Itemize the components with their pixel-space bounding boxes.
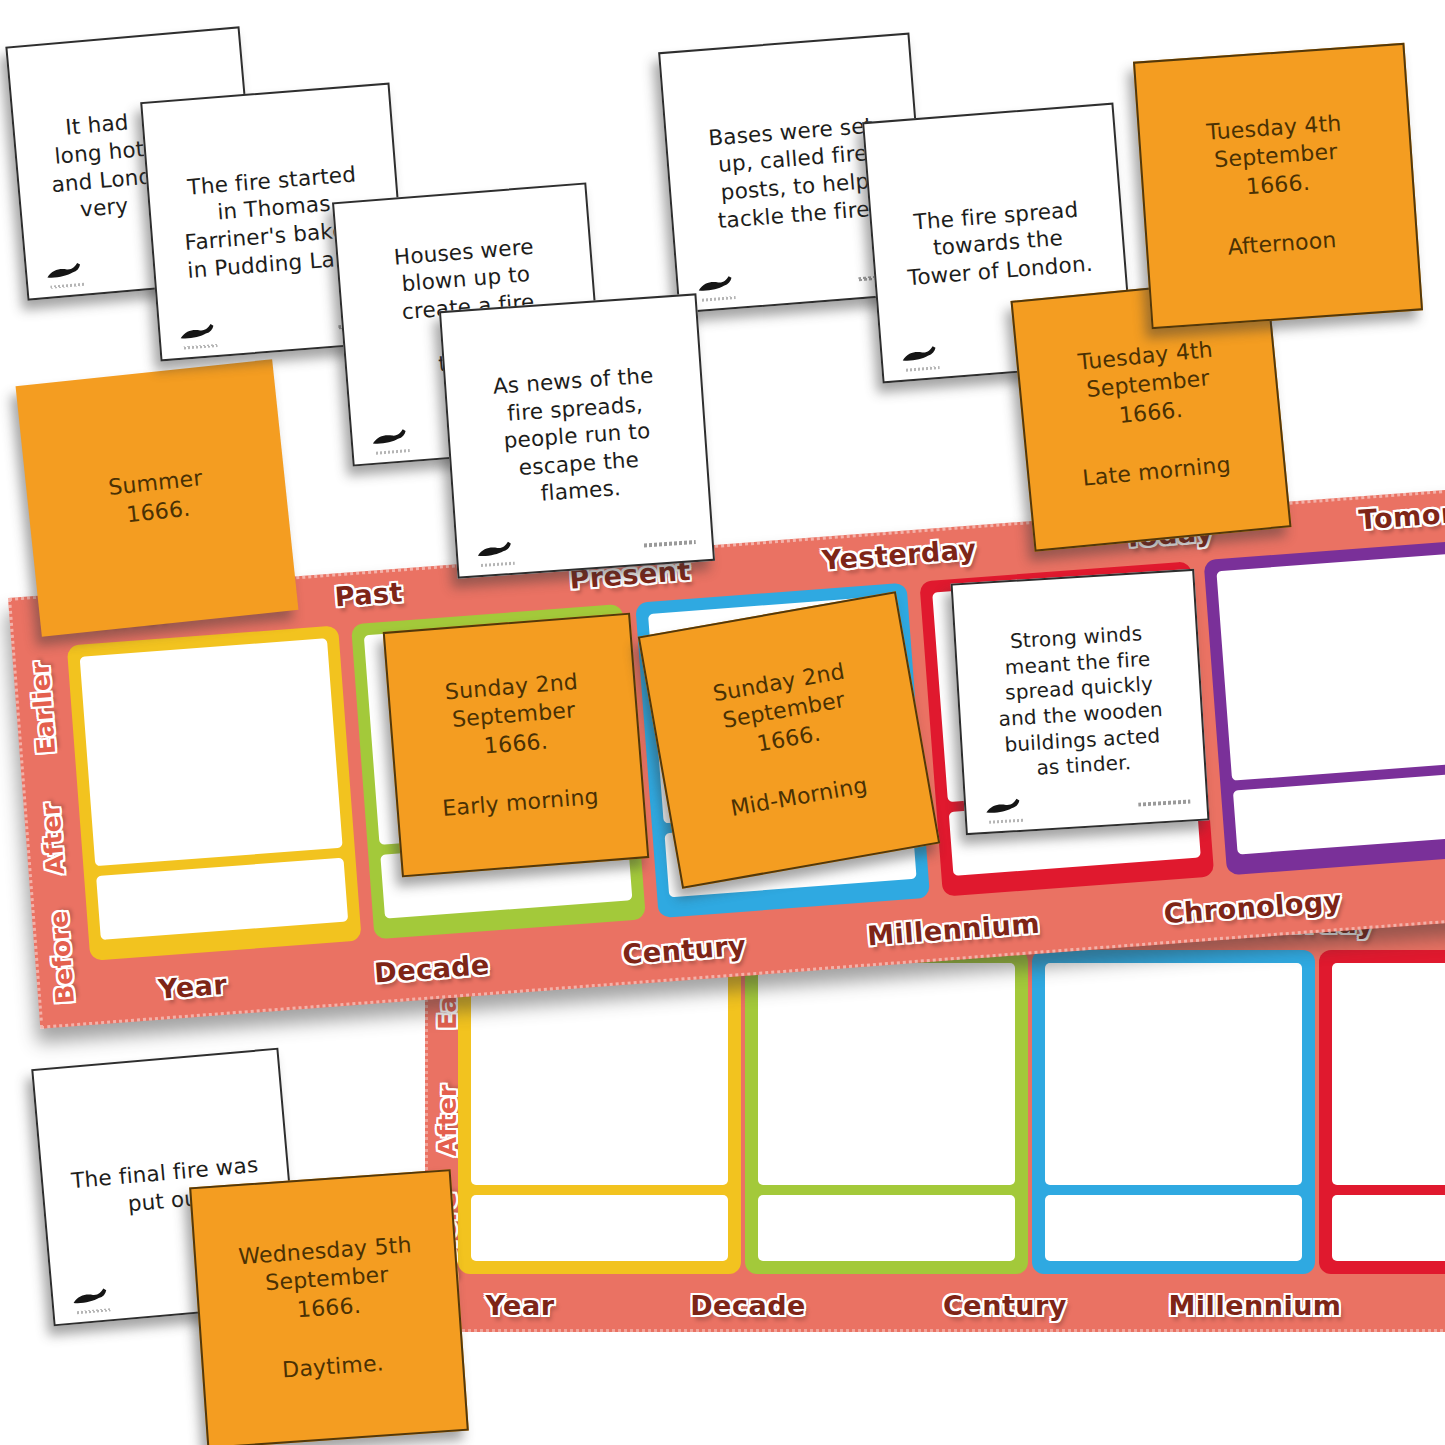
copyright-smudge xyxy=(1138,799,1190,806)
wildgoose-logo-icon xyxy=(370,426,411,449)
date-card-tuesday-afternoon[interactable]: Tuesday 4th September 1666. Afternoon xyxy=(1133,43,1423,329)
board1-side-label-earlier: Earlier xyxy=(24,647,62,769)
event-card-news-spreads[interactable]: As news of the fire spreads, people run … xyxy=(439,293,715,578)
timeline-frame-red xyxy=(1319,950,1445,1274)
time-text: Afternoon xyxy=(1227,226,1338,262)
date-text: Wednesday 5th September 1666. xyxy=(237,1231,416,1329)
time-text: Late morning xyxy=(1081,450,1232,493)
board1-bottom-label-millennium: Millennium xyxy=(866,908,1041,952)
board1-bottom-label-chronology: Chronology xyxy=(1163,885,1343,929)
logo-caption-smudge xyxy=(989,819,1023,824)
date-card-summer-1666[interactable]: Summer 1666. xyxy=(16,359,299,637)
wildgoose-logo-icon xyxy=(475,539,516,562)
board1-top-label-yesterday: Yesterday xyxy=(821,533,978,576)
board2-bottom-label-century: Century xyxy=(943,1290,1067,1321)
date-card-wednesday-daytime[interactable]: Wednesday 5th September 1666. Daytime. xyxy=(189,1169,469,1445)
logo-caption-smudge xyxy=(183,344,217,350)
card-slot-small[interactable] xyxy=(96,858,348,940)
timeline-frame-yellow xyxy=(458,950,741,1274)
date-text: Summer 1666. xyxy=(107,465,207,532)
card-slot-small[interactable] xyxy=(758,1195,1015,1261)
wildgoose-logo-icon xyxy=(984,796,1025,818)
board1-bottom-label-century: Century xyxy=(621,930,747,970)
board1-side-label-after: After xyxy=(34,778,72,900)
event-card-text: Bases were set up, called fire posts, to… xyxy=(707,112,880,235)
wildgoose-logo-icon xyxy=(696,273,737,296)
card-slot-large[interactable] xyxy=(758,963,1015,1185)
card-slot-large[interactable] xyxy=(1045,963,1302,1185)
date-text: Tuesday 4th September 1666. xyxy=(1205,109,1346,204)
card-slot-small[interactable] xyxy=(471,1195,728,1261)
timeline-frame-blue xyxy=(1032,950,1315,1274)
timeline-frame-purple xyxy=(1204,540,1445,876)
logo-caption-smudge xyxy=(76,1308,110,1314)
board2-bottom-label-millennium: Millennium xyxy=(1169,1290,1342,1321)
event-card-text: As news of the fire spreads, people run … xyxy=(492,362,662,510)
board1-bottom-label-year: Year xyxy=(157,969,228,1005)
board1-top-label-tomorrow: Tomorrow xyxy=(1358,493,1445,535)
copyright-smudge xyxy=(644,540,696,548)
timeline-frame-green xyxy=(745,950,1028,1274)
wildgoose-logo-icon xyxy=(71,1285,113,1308)
time-text: Daytime. xyxy=(281,1349,384,1385)
board1-side-label-before: Before xyxy=(43,897,81,1019)
time-text: Mid-Morning xyxy=(728,771,869,823)
card-slot-large[interactable] xyxy=(1332,963,1445,1185)
wildgoose-logo-icon xyxy=(900,343,941,366)
logo-caption-smudge xyxy=(702,296,736,302)
board1-top-label-past: Past xyxy=(334,576,404,612)
card-slot-small[interactable] xyxy=(1233,772,1445,854)
wildgoose-logo-icon xyxy=(178,321,219,344)
logo-caption-smudge xyxy=(50,283,84,289)
logo-caption-smudge xyxy=(481,562,515,567)
date-card-sunday-mid-morning[interactable]: Sunday 2nd September 1666. Mid-Morning xyxy=(638,591,940,889)
date-text: Sunday 2nd September 1666. xyxy=(444,668,584,764)
date-text: Sunday 2nd September 1666. xyxy=(711,657,857,765)
card-slot-large[interactable] xyxy=(1216,553,1445,781)
event-card-strong-winds[interactable]: Strong winds meant the fire spread quick… xyxy=(951,569,1210,835)
card-slot-large[interactable] xyxy=(471,963,728,1185)
date-card-sunday-early-morning[interactable]: Sunday 2nd September 1666. Early morning xyxy=(383,613,650,878)
card-slot-large[interactable] xyxy=(80,638,343,866)
board2-bottom-label-decade: Decade xyxy=(690,1290,806,1321)
event-card-text: Strong winds meant the fire spread quick… xyxy=(993,620,1167,783)
board2-bottom-label-year: Year xyxy=(486,1290,555,1321)
logo-caption-smudge xyxy=(376,449,410,455)
timeline-frame-yellow xyxy=(67,625,362,961)
time-text: Early morning xyxy=(441,782,599,823)
card-slot-small[interactable] xyxy=(1045,1195,1302,1261)
date-text: Tuesday 4th September 1666. xyxy=(1077,336,1220,434)
event-card-text: The fire spread towards the Tower of Lon… xyxy=(902,195,1093,292)
logo-caption-smudge xyxy=(906,366,940,372)
card-slot-small[interactable] xyxy=(1332,1195,1445,1261)
board1-bottom-label-decade: Decade xyxy=(373,949,491,989)
wildgoose-logo-icon xyxy=(44,260,86,283)
